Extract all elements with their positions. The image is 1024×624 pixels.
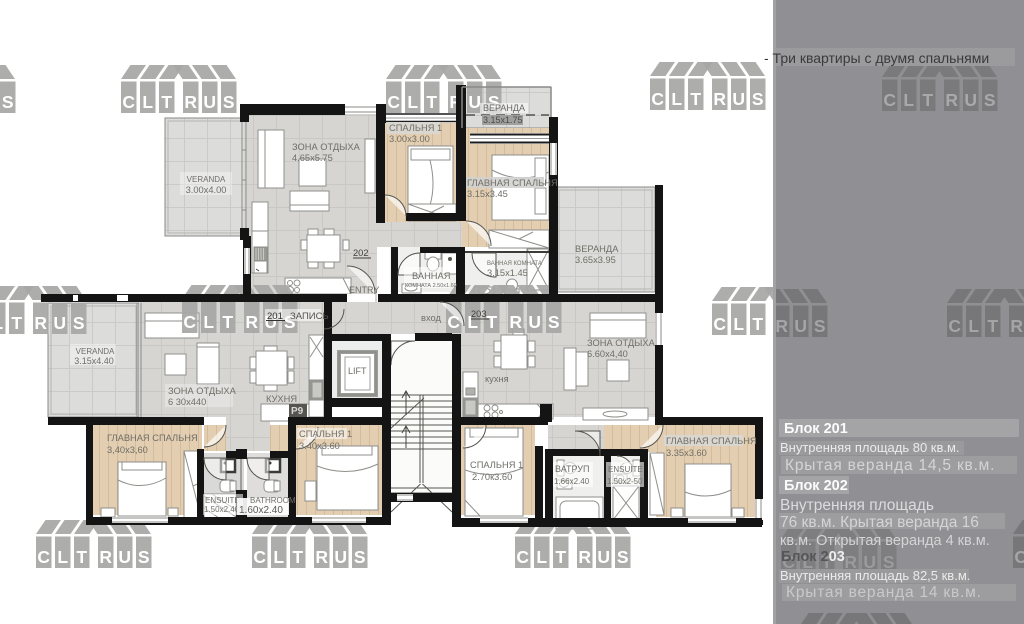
svg-text:ВАННАЯ: ВАННАЯ <box>412 271 450 281</box>
svg-text:3.15x3.45: 3.15x3.45 <box>467 189 508 199</box>
svg-text:Внутренняя площадь 80 кв.м.: Внутренняя площадь 80 кв.м. <box>780 440 960 455</box>
svg-text:3,40x3,60: 3,40x3,60 <box>107 445 148 455</box>
svg-text:202: 202 <box>353 248 369 258</box>
svg-text:6 30x440: 6 30x440 <box>168 397 206 407</box>
svg-text:ЗОНА ОТДЫХА: ЗОНА ОТДЫХА <box>168 386 237 396</box>
svg-text:3.15x1.75: 3.15x1.75 <box>483 115 523 125</box>
svg-text:- Три квартиры с двумя спальня: - Три квартиры с двумя спальнями <box>764 50 989 66</box>
svg-text:КОМНАТА 2.50х1.60: КОМНАТА 2.50х1.60 <box>405 283 457 289</box>
svg-text:ENSUITE: ENSUITE <box>205 496 240 505</box>
svg-text:КУХНЯ: КУХНЯ <box>266 394 297 404</box>
svg-text:Крытая веранда 14 кв.м.: Крытая веранда 14 кв.м. <box>786 584 982 601</box>
svg-text:ВЕРАНДА: ВЕРАНДА <box>575 244 619 254</box>
svg-text:76 кв.м. Крытая веранда 16: 76 кв.м. Крытая веранда 16 <box>780 514 979 531</box>
svg-text:ВЕРАНДА: ВЕРАНДА <box>483 103 525 113</box>
svg-text:ВАТРУП: ВАТРУП <box>555 464 590 474</box>
svg-text:2.70к3.60: 2.70к3.60 <box>472 472 512 482</box>
svg-text:203: 203 <box>471 309 487 319</box>
svg-text:3.35x3.60: 3.35x3.60 <box>666 448 707 458</box>
svg-text:Блок 202: Блок 202 <box>784 478 848 494</box>
svg-text:LIFT: LIFT <box>348 366 367 376</box>
svg-text:Блок 203: Блок 203 <box>781 549 845 565</box>
svg-text:кухня: кухня <box>485 374 509 384</box>
svg-text:ENSUITE: ENSUITE <box>608 465 643 474</box>
svg-text:Блок 201: Блок 201 <box>784 421 848 437</box>
svg-text:СПАЛЬНЯ 1: СПАЛЬНЯ 1 <box>389 123 442 133</box>
svg-text:3.40x3.60: 3.40x3.60 <box>299 441 340 451</box>
svg-text:4.65x5.75: 4.65x5.75 <box>292 153 333 163</box>
svg-text:BATHROOM: BATHROOM <box>250 496 296 505</box>
svg-text:СПАЛЬНЯ 1: СПАЛЬНЯ 1 <box>299 429 352 439</box>
svg-text:VERANDA: VERANDA <box>187 175 226 184</box>
svg-text:ГЛАВНАЯ СПАЛЬНЯ: ГЛАВНАЯ СПАЛЬНЯ <box>666 436 757 446</box>
svg-text:СПАЛЬНЯ 1: СПАЛЬНЯ 1 <box>470 460 523 470</box>
svg-text:3.15x4.40: 3.15x4.40 <box>74 356 114 366</box>
svg-text:3.00x4.00: 3.00x4.00 <box>186 185 227 195</box>
svg-text:кв.м. Открытая веранда 4 кв.м.: кв.м. Открытая веранда 4 кв.м. <box>780 533 990 549</box>
svg-text:VERANDA: VERANDA <box>76 347 115 356</box>
svg-text:6.60x4,40: 6.60x4,40 <box>587 349 628 359</box>
svg-text:1.50x2-50: 1.50x2-50 <box>607 477 643 486</box>
svg-text:ЗОНА ОТДЫХА: ЗОНА ОТДЫХА <box>292 142 361 152</box>
svg-text:ENTRY: ENTRY <box>349 285 379 295</box>
svg-text:ГЛАВНАЯ СПАЛЬНЯ: ГЛАВНАЯ СПАЛЬНЯ <box>467 178 558 188</box>
svg-text:ЗОНА ОТДЫХА: ЗОНА ОТДЫХА <box>587 338 656 348</box>
svg-text:Крытая веранда 14,5 кв.м.: Крытая веранда 14,5 кв.м. <box>785 457 995 474</box>
svg-text:3.65x3.95: 3.65x3.95 <box>575 255 616 265</box>
svg-text:Внутренняя площадь: Внутренняя площадь <box>780 497 934 514</box>
svg-text:1.60x2.40: 1.60x2.40 <box>239 505 283 516</box>
svg-text:3.00x3.00: 3.00x3.00 <box>389 134 430 144</box>
svg-text:ВАННАЯ КОМНАТА: ВАННАЯ КОМНАТА <box>487 261 542 267</box>
svg-text:ЗАПИСЬ: ЗАПИСЬ <box>290 311 329 322</box>
svg-text:вход: вход <box>421 313 441 323</box>
svg-text:1.66x2.40: 1.66x2.40 <box>554 477 590 486</box>
svg-text:1.50x2.40: 1.50x2.40 <box>204 505 240 514</box>
svg-text:3.15x1.45: 3.15x1.45 <box>487 268 528 278</box>
svg-text:ГЛАВНАЯ СПАЛЬНЯ: ГЛАВНАЯ СПАЛЬНЯ <box>107 433 198 443</box>
svg-text:Внутренняя площадь 82,5 кв.м.: Внутренняя площадь 82,5 кв.м. <box>780 568 970 583</box>
svg-text:Р9: Р9 <box>291 406 304 417</box>
